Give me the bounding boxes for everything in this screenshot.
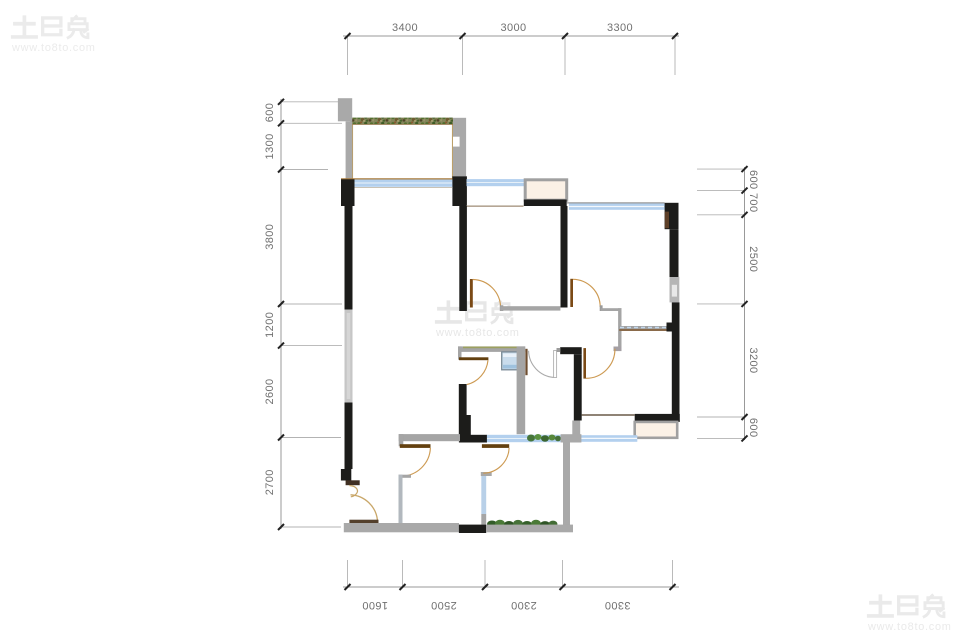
svg-text:3300: 3300 [607,22,633,34]
svg-text:2500: 2500 [747,246,759,272]
svg-text:1300: 1300 [264,133,276,159]
svg-text:2500: 2500 [431,599,457,611]
svg-text:600: 600 [264,103,276,123]
svg-text:1200: 1200 [264,312,276,338]
svg-text:3300: 3300 [604,599,630,611]
svg-text:3400: 3400 [392,22,418,34]
svg-text:1600: 1600 [362,599,388,611]
svg-text:700: 700 [747,193,759,213]
svg-text:3000: 3000 [500,22,526,34]
svg-text:600: 600 [747,170,759,190]
svg-text:www.to8to.com: www.to8to.com [11,42,96,54]
svg-text:2300: 2300 [511,599,537,611]
svg-text:www.to8to.com: www.to8to.com [867,621,952,633]
svg-text:2600: 2600 [264,378,276,404]
svg-text:3200: 3200 [747,347,759,373]
svg-text:2700: 2700 [264,469,276,495]
svg-text:3800: 3800 [264,224,276,250]
svg-text:600: 600 [747,418,759,438]
